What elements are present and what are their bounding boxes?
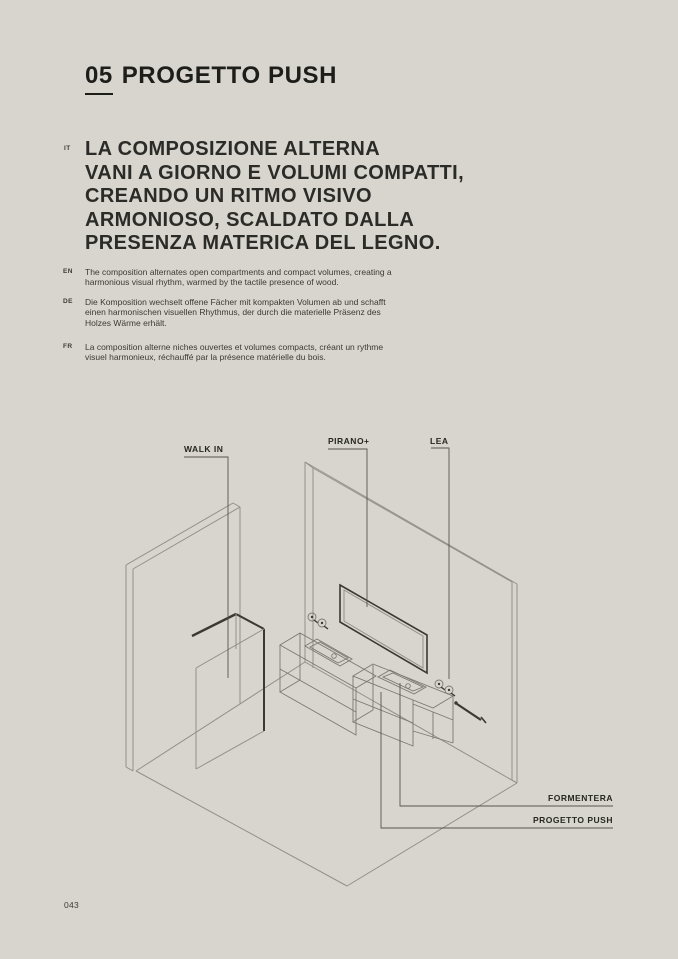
page-number: 043 (64, 900, 79, 910)
label-formentera: FORMENTERA (548, 793, 613, 803)
label-pirano: PIRANO+ (328, 436, 370, 446)
left-wall (126, 503, 240, 771)
wall-taps-left (308, 613, 328, 629)
wall-taps-right (435, 680, 455, 696)
vanity-left (280, 633, 376, 735)
vanity-right (353, 664, 453, 746)
right-wall (305, 462, 517, 783)
label-progetto-push: PROGETTO PUSH (533, 815, 613, 825)
label-lea: LEA (430, 436, 449, 446)
towel-bar (454, 701, 486, 723)
catalog-page: 05 PROGETTO PUSH IT LA COMPOSIZIONE ALTE… (0, 0, 678, 959)
label-walk-in: WALK IN (184, 444, 223, 454)
mirror (340, 585, 427, 673)
